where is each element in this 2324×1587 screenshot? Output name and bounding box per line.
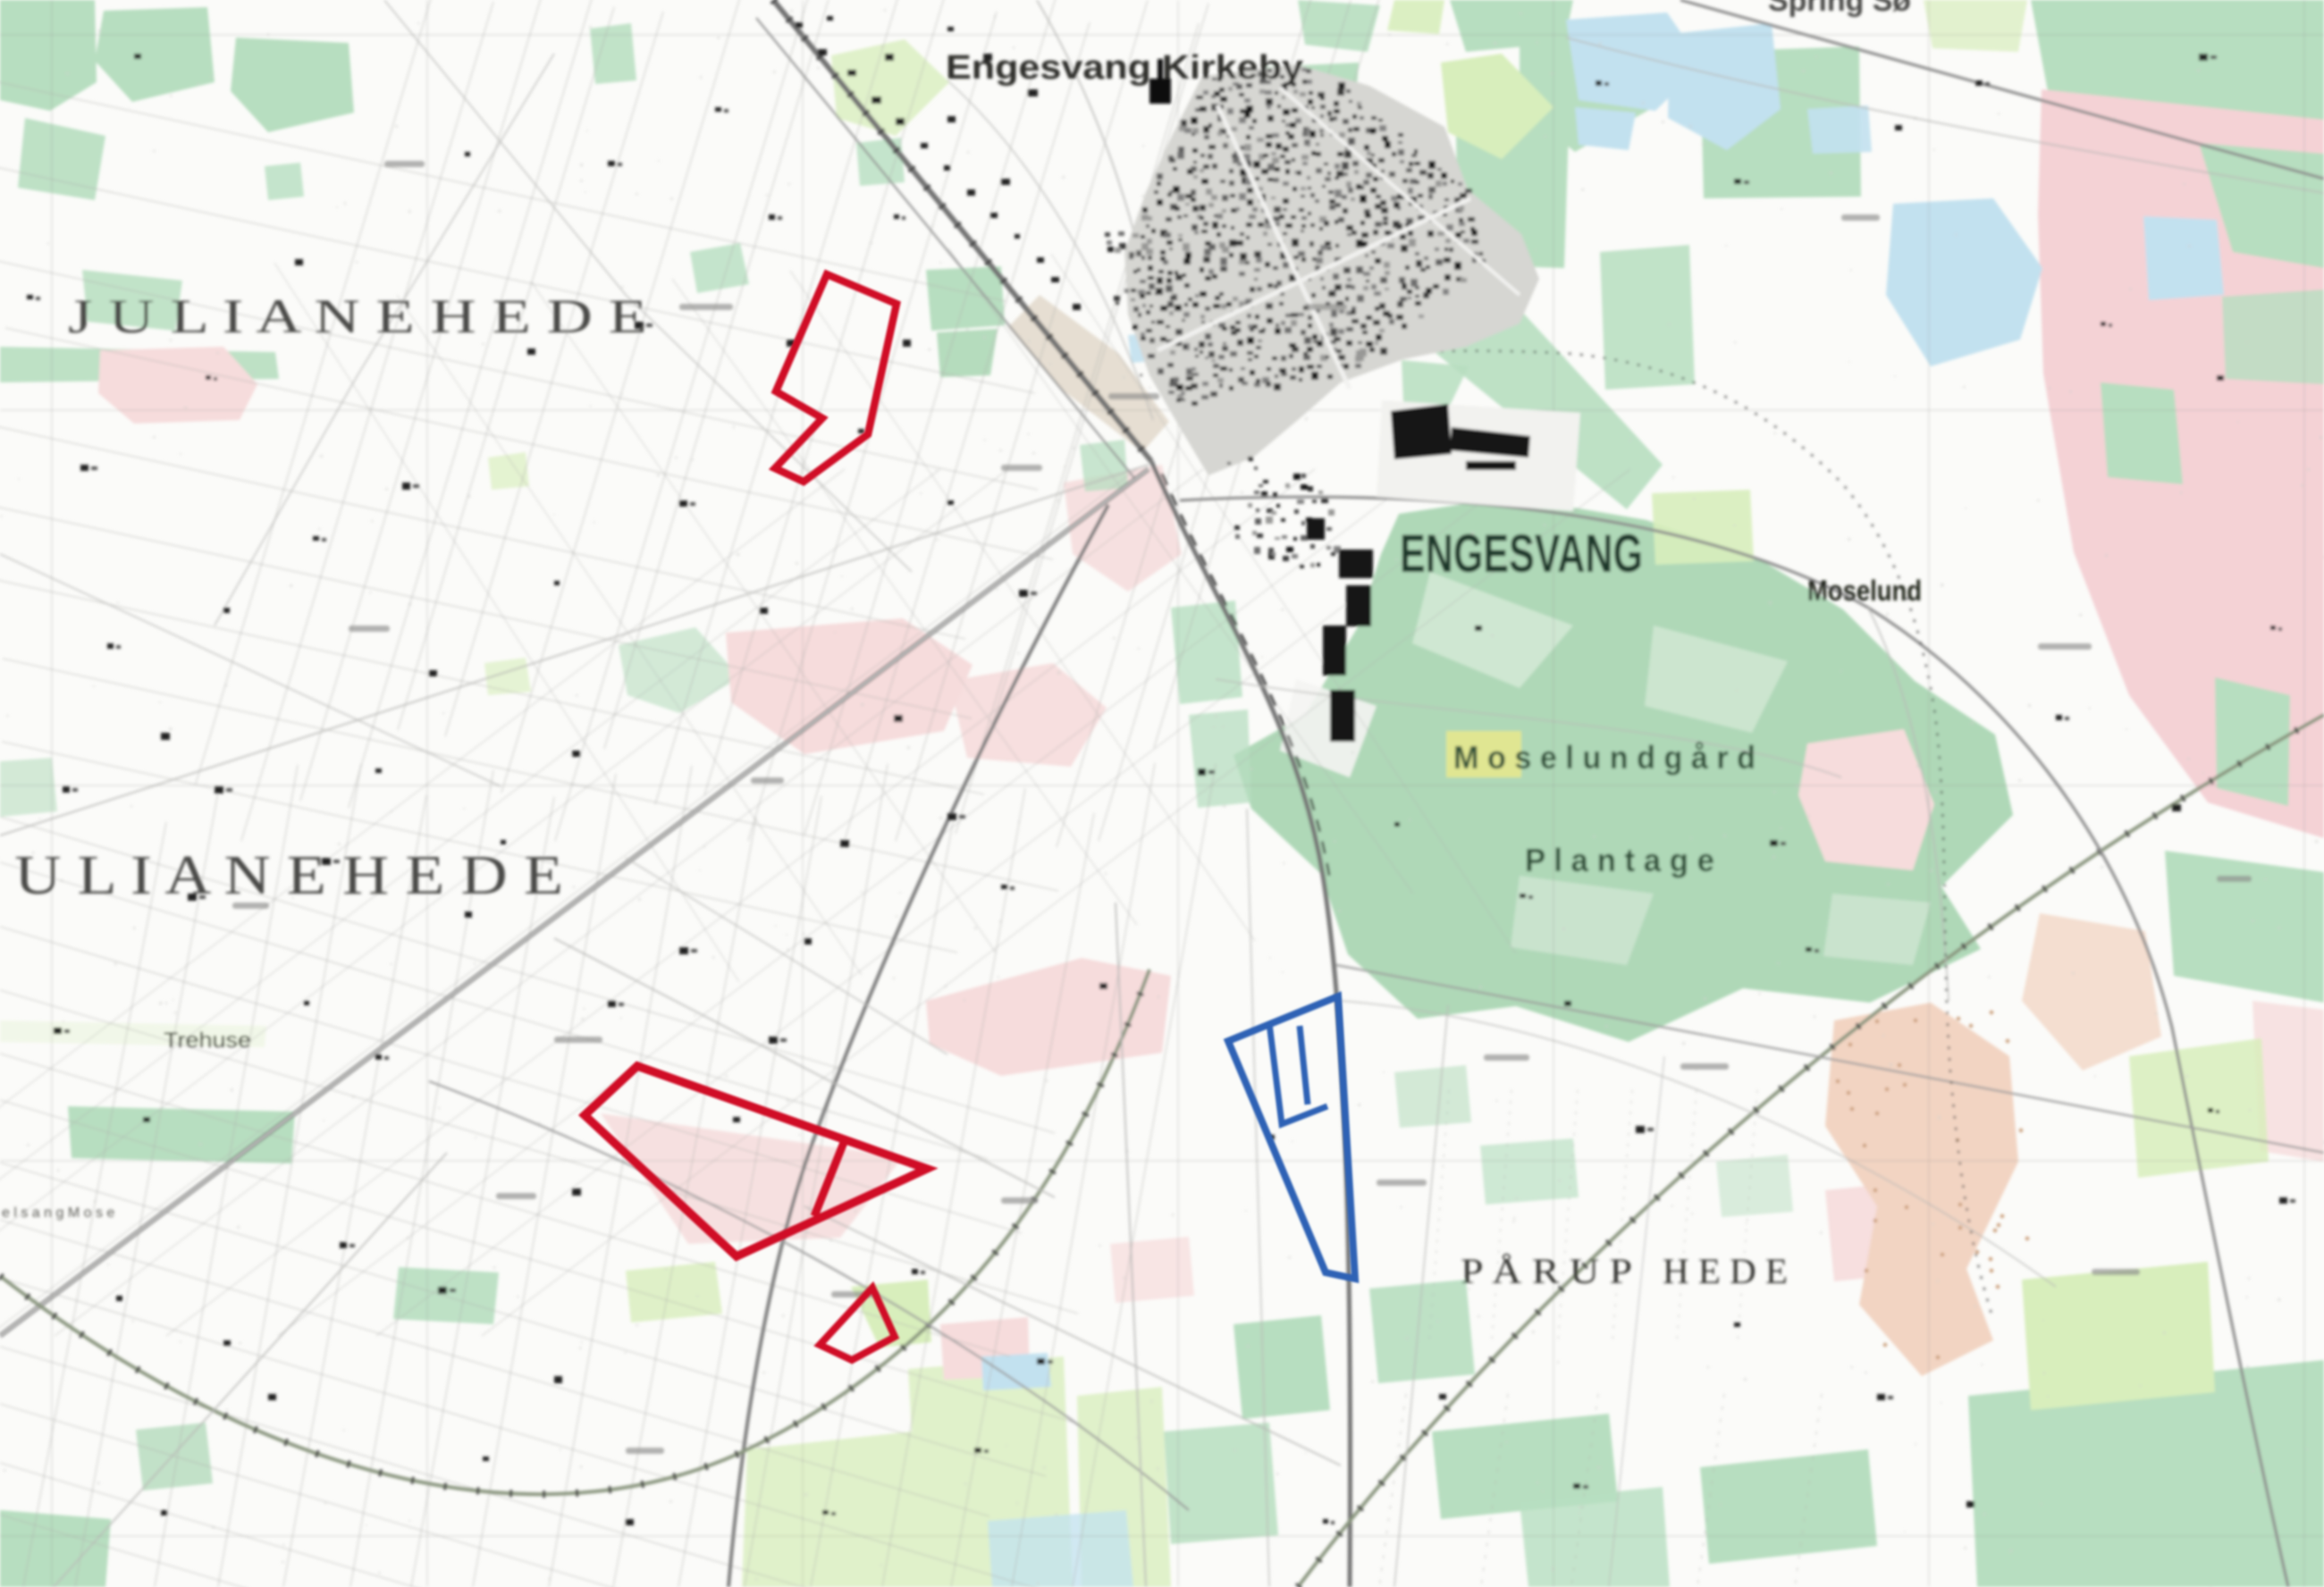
svg-text:M o s e l u n d g å r d: M o s e l u n d g å r d	[1453, 739, 1756, 776]
svg-text:Spring Sø: Spring Sø	[1768, 0, 1911, 18]
svg-text:J U L I A N E H E D E: J U L I A N E H E D E	[0, 845, 563, 906]
svg-text:ENGESVANG: ENGESVANG	[1400, 524, 1643, 584]
svg-text:e l s a n g M o s e: e l s a n g M o s e	[2, 1205, 114, 1221]
svg-text:J U L I A N E H E D E: J U L I A N E H E D E	[68, 290, 647, 343]
svg-text:H E D E: H E D E	[1663, 1251, 1788, 1291]
svg-text:P Å R U P: P Å R U P	[1461, 1251, 1632, 1291]
svg-text:Moselund: Moselund	[1807, 575, 1922, 607]
svg-text:P l a n t a g e: P l a n t a g e	[1525, 842, 1714, 878]
svg-text:Trehuse: Trehuse	[164, 1029, 251, 1053]
svg-text:Engesvang Kirkeby: Engesvang Kirkeby	[946, 49, 1303, 87]
